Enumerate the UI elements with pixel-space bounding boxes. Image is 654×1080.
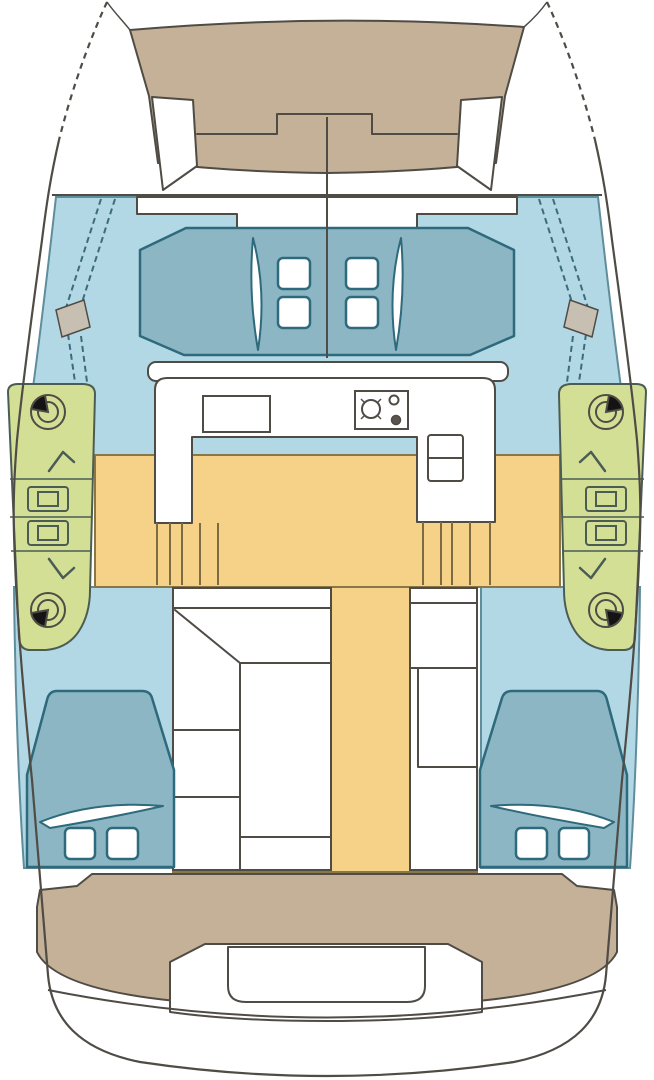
hatch-icon <box>346 297 378 328</box>
hatch-icon <box>278 258 310 289</box>
hatch-icon <box>65 828 95 859</box>
hatch-icon <box>107 828 138 859</box>
sink-icon <box>428 435 463 481</box>
hatch-icon <box>559 828 589 859</box>
companionways <box>173 588 477 870</box>
port-aft-berth <box>27 691 174 867</box>
burner-small-icon <box>392 416 401 425</box>
hatch-icon <box>346 258 378 289</box>
hatch-icon <box>516 828 547 859</box>
cockpit-table <box>228 947 425 1002</box>
starboard-aft-berth <box>480 691 627 867</box>
stove-icon <box>355 391 408 429</box>
catamaran-floor-plan <box>0 0 654 1080</box>
starboard-companionway-stairs <box>410 588 477 870</box>
hatch-icon <box>278 297 310 328</box>
floor-plan-svg <box>0 0 654 1080</box>
